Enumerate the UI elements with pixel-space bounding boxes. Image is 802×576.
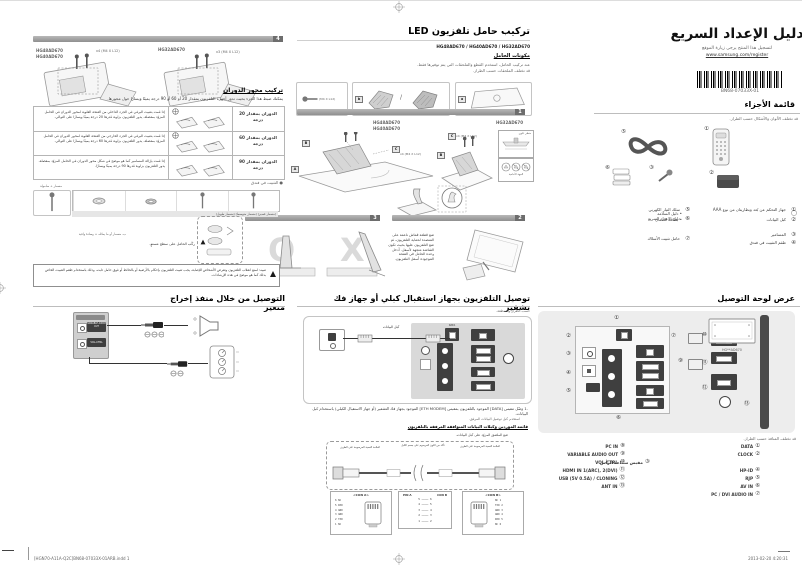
port-label: CLOCK xyxy=(738,452,753,457)
table-hline xyxy=(34,155,284,156)
panel-diagram xyxy=(538,311,795,433)
headphone-jack xyxy=(421,346,430,355)
manual-books-icon xyxy=(611,167,633,187)
warning-triangle-icon xyxy=(270,271,276,277)
wrong-placement-sketch xyxy=(325,230,387,284)
data-cable-label: كبل البيانات xyxy=(366,325,416,329)
variable-audio-label: VARIABLE AUDIO OUT xyxy=(87,322,106,332)
flat-surface-note-2: ب- مسمار أو ما يماثله + وسادة واقية xyxy=(70,232,126,236)
swivel-screws-left: x4 (M4 X L12) xyxy=(96,49,142,53)
port-cluster xyxy=(575,326,670,414)
port-num: ⑬ xyxy=(619,484,625,490)
remote-control-icon xyxy=(712,128,730,166)
screw-long-icon xyxy=(48,192,56,213)
screwbox xyxy=(33,190,71,216)
table-hline xyxy=(34,131,284,132)
rj-connector-icon xyxy=(425,334,441,343)
step-number: 3 xyxy=(370,215,380,221)
part-label: طقم التثبيت في فندق xyxy=(750,240,786,245)
rotation-label: الدوران بمقدار 90 درجة xyxy=(234,159,282,170)
place-tv-text: ضع قطعة قماش ناعمة على المنضدة لحماية ال… xyxy=(388,233,434,262)
stand-note-1: عند تركيب الحامل، استخدم القطع والملحقات… xyxy=(320,62,530,67)
callout-c: C xyxy=(448,133,456,140)
inset-top-view: منظر علوي xyxy=(498,130,534,158)
screw-position-icon xyxy=(172,108,179,115)
panel-heading: عرض لوحة التوصيل xyxy=(660,294,795,303)
swivel-diagram-right xyxy=(158,52,273,110)
table-vline xyxy=(168,107,169,179)
port-label: VOL-CTRL xyxy=(595,460,618,465)
parts-note: قد تختلف الألوان والأشكال حسب الطراز. xyxy=(640,116,798,121)
magnifier-detail xyxy=(437,185,467,213)
port-num: ② xyxy=(755,452,760,458)
tv-thumbnail xyxy=(708,318,756,346)
clock-port xyxy=(471,329,495,341)
data-cable-drawing xyxy=(331,460,509,484)
crop-dash-bottom-left xyxy=(2,550,14,551)
headphone-jack xyxy=(582,347,596,359)
legend-row: PC / DVI AUDIO IN⑦ xyxy=(600,492,760,498)
panel-top-strip xyxy=(76,315,105,320)
con-b-box: <CON B> NC 1 TXD 2 GND 3 GND 4 RXD 5 NC … xyxy=(462,491,524,535)
data-cable-pouch-icon xyxy=(716,172,740,190)
audio-cable-line xyxy=(107,325,141,326)
port-label: AV IN xyxy=(740,484,753,489)
port-label: HP-ID xyxy=(740,468,753,473)
caution-text: تنبيه: لمنع انقلاب التلفزيون وتعرض الأشخ… xyxy=(38,268,266,278)
registration-mark-bottom xyxy=(393,553,405,565)
inset-front-check: الجهة الأمامية xyxy=(498,158,534,182)
step-text: وصّل مقبس [DATA] الموجود بالتلفزيون بمقب… xyxy=(312,406,528,416)
port-num: ① xyxy=(755,444,760,450)
phone-plug-icon xyxy=(141,320,165,330)
stand-guide-icon xyxy=(365,87,399,111)
vol-ctrl-label: VOL-CTRL xyxy=(87,338,106,347)
screw-cell xyxy=(228,191,280,211)
plug-pins-icon xyxy=(144,331,164,338)
sticker-note: ضع الملصق المزوّد على كبل البيانات. xyxy=(380,433,508,437)
port-num: ⑥ xyxy=(755,484,760,490)
connector-front-icon xyxy=(361,500,385,530)
pin-row: 1 NC xyxy=(335,523,343,528)
port-num: ④ xyxy=(755,468,760,474)
con-b-caption: <CON B> xyxy=(463,493,523,497)
varout-heading: التوصيل من خلال منفذ إخراج متغير xyxy=(150,294,285,312)
screw-spec: (M4 X L12) xyxy=(319,97,335,101)
panel-callout: ⑨ xyxy=(678,359,683,365)
stb-step1b: استخدم كبل توصيل البيانات المرفق. xyxy=(300,417,520,421)
part-num: ④ xyxy=(791,240,796,246)
screw-position-icon xyxy=(172,132,179,139)
usb-side-port xyxy=(711,374,737,390)
screw-cell xyxy=(73,191,125,211)
port-top xyxy=(616,329,632,341)
speaker-icon xyxy=(190,313,220,339)
inset-caption: الجهة الأمامية xyxy=(499,173,533,176)
inset-caption: منظر علوي xyxy=(499,131,533,135)
volctrl-cable-h xyxy=(89,363,167,364)
port-num: ⑪ xyxy=(619,468,625,474)
callout-b: B xyxy=(437,152,445,159)
stb-note: حسب الطراز والمنطقة. xyxy=(430,309,530,313)
stand-rule xyxy=(297,40,530,41)
tv-model-label: HG**AD670 xyxy=(700,348,764,352)
port-label: PC / DVI AUDIO IN xyxy=(711,492,753,497)
volctrl-cable-h2 xyxy=(188,363,208,364)
power-cord-icon xyxy=(627,136,669,158)
rotation-label: الدوران بمقدار 60 درجة xyxy=(234,135,282,146)
port-label: VARIABLE AUDIO OUT xyxy=(567,452,618,457)
plug-pins-icon xyxy=(170,370,184,377)
barcode-text: BN68-07033X-01 xyxy=(697,89,783,94)
data-port xyxy=(636,385,664,396)
swivel-screws-right: x3 (M4 X L12) xyxy=(216,50,262,54)
step-bar-4: 4 xyxy=(33,36,283,42)
step-number: 4 xyxy=(273,36,283,42)
parts-label-warranty: • بطاقة الضمان xyxy=(590,217,682,222)
step-bar-1: 1 xyxy=(297,109,525,115)
tv-side-profile xyxy=(760,315,769,429)
callout-a: A xyxy=(291,166,299,173)
slash-separator: / xyxy=(400,94,402,101)
pad-inset xyxy=(197,216,243,264)
pin-row: NC 6 xyxy=(495,523,503,528)
diagram-models-a1: HG48AD670 xyxy=(345,120,400,125)
panel-note: قد تختلف المنافذ حسب الطراز. xyxy=(640,436,796,441)
flat-note-text: ركّب الحامل على سطح مستوٍ. xyxy=(149,242,195,246)
hdmi-ports xyxy=(636,361,664,381)
part-num: ⑥ xyxy=(685,216,690,222)
cable-tag-left: العلامة النصية المرسومة على الطرف xyxy=(335,446,385,450)
rotation-desc: إذا قمت بتثبيت البرغي في الجزء الداخلي م… xyxy=(37,110,165,120)
file-info: [HGN70-A11A-Q2C]BN68-07033X-01ARB.indd 1 xyxy=(34,556,129,561)
pin-list: 6 NC 5 RXD 4 GND 3 GND 2 TXD 1 NC xyxy=(335,499,343,528)
registration-mark-top xyxy=(393,1,405,13)
rotation-desc: إذا قمت بإزالة المسامير كما هو موضح في ش… xyxy=(37,159,165,169)
stand-guide-icon xyxy=(409,87,443,111)
stand-side-view-icon xyxy=(501,136,531,152)
port-label: ANT IN xyxy=(601,484,617,489)
data-cable-detail-box: العلامة النصية المرسومة على الطرف تأكد م… xyxy=(326,441,514,490)
panel-callout: ⑥ xyxy=(616,416,621,422)
panel-callout: ② xyxy=(566,334,571,340)
diagram-model-b: HG32AD670 xyxy=(478,120,523,125)
diagram-models-a2: HG40AD670 xyxy=(345,126,400,131)
screw-long-icon xyxy=(250,192,257,210)
bracket-shape-1 xyxy=(688,333,703,344)
port-label: USB (5V 0.5A) / CLONING xyxy=(559,476,618,481)
clock-port xyxy=(636,345,664,358)
port-num: ③ xyxy=(645,460,650,466)
data-port xyxy=(445,328,459,341)
screw-long-icon xyxy=(199,192,206,210)
audio-cable-line-2 xyxy=(164,325,188,326)
crop-tick-bottom-left xyxy=(28,547,29,560)
part-callout-6: ⑥ xyxy=(605,166,610,172)
map-head-b: CON B xyxy=(437,493,447,497)
panel-callout: ⑦ xyxy=(671,334,676,340)
rotation-sketch xyxy=(171,111,229,129)
map-head-a: PIN A xyxy=(403,493,412,497)
hdmi-ports xyxy=(471,345,495,363)
pin-row: 5 RXD xyxy=(335,504,343,509)
page-title: دليل الإعداد السريع xyxy=(662,26,802,42)
port-label: DATA xyxy=(741,444,753,449)
assembled-stand-icon xyxy=(396,186,438,216)
panel-callout: ⑩ xyxy=(702,333,707,339)
swivel-intro: يمكنك ضبط هذا الجزء بحيث تدور أجهزة التل… xyxy=(36,96,283,101)
port-label: PC IN xyxy=(605,444,618,449)
panel-callout: ⑬ xyxy=(744,402,750,408)
stb-eth-jack xyxy=(319,329,345,351)
swivel-heading: تركيب محور الدوران xyxy=(150,87,283,94)
part-label: حامل تثبيت الأسلاك xyxy=(647,236,680,241)
ant-in-port xyxy=(719,396,731,408)
scanned-manual-page: دليل الإعداد السريع لتسجيل هذا المنتج ير… xyxy=(0,0,802,576)
step-number: 1 xyxy=(515,109,525,115)
stand-subheading: مكونات الحامل xyxy=(430,53,530,59)
screw-strip xyxy=(72,190,280,212)
parts-label-safety: • دليل السلامة xyxy=(590,211,682,216)
pc-in-port xyxy=(636,398,664,409)
port-num: ⑤ xyxy=(755,476,760,482)
pad-detail-icon xyxy=(203,221,237,259)
bracket-shape-2 xyxy=(688,359,703,370)
table-vline xyxy=(232,107,233,179)
panel-callout: ⑫ xyxy=(702,386,708,392)
av-in-block xyxy=(602,349,622,407)
screw-cell xyxy=(176,191,228,211)
tv-insert-diagram xyxy=(455,228,525,286)
varout-panel: VARIABLE AUDIO OUT VOL-CTRL xyxy=(73,312,109,359)
hdmi-side-port-2 xyxy=(711,352,737,364)
screw-cell xyxy=(125,191,177,211)
part-callout-5: ⑤ xyxy=(621,130,626,136)
callout-b: B xyxy=(302,140,310,147)
rotation-table: الدوران بمقدار 20 درجة إذا قمت بتثبيت ال… xyxy=(33,106,285,180)
port-num: ⑩ xyxy=(620,460,625,466)
vol-ctrl-jack xyxy=(77,339,87,349)
stb-rule xyxy=(297,306,530,307)
parts-rule xyxy=(594,113,800,114)
register-note: لتسجيل هذا المنتج يرجى زيارة الموقع xyxy=(662,46,802,51)
pc-in-port xyxy=(471,381,495,391)
print-datetime: 2013-02-20 4:20:31 xyxy=(680,556,788,561)
av-in-block xyxy=(437,343,453,391)
caution-box: تنبيه: لمنع انقلاب التلفزيون وتعرض الأشخ… xyxy=(33,264,280,287)
crop-dash-bottom-right xyxy=(778,551,790,552)
panel-callout: ④ xyxy=(566,371,571,377)
part-label: دليل السلامة xyxy=(657,211,678,216)
rjp-port xyxy=(586,383,600,392)
con-a-caption: <CON A> xyxy=(331,493,391,497)
panel-callout: ③ xyxy=(566,352,571,358)
pin-row: TXD 2 xyxy=(495,504,503,509)
rotation-sketch xyxy=(171,135,229,153)
pin-map-box: PIN ACON B 5 ──── 6 4 ──── 5 3 ──── 4 2 … xyxy=(398,491,452,529)
stand-note-2: قد تختلف الملحقات حسب الطراز. xyxy=(320,68,530,73)
varout-rule xyxy=(33,306,285,307)
port-num: ⑧ xyxy=(620,444,625,450)
screw-count-right: x4 (M4 X L12) xyxy=(456,134,496,138)
step-number: 2 xyxy=(515,215,525,221)
part-num: ⑦ xyxy=(685,236,690,242)
phone-plug-icon xyxy=(167,359,189,369)
screw-icon xyxy=(302,95,318,103)
map-row: 1 ──── 2 xyxy=(399,519,451,524)
part-callout-2: ② xyxy=(709,171,714,177)
connector-front-icon xyxy=(467,500,491,530)
flat-surface-note: ركّب الحامل على سطح مستوٍ. xyxy=(130,230,206,249)
callout-c: C xyxy=(392,146,400,153)
barcode xyxy=(697,71,783,88)
rotation-desc: إذا قمت بتثبيت البرغي في الجزء الخارجي م… xyxy=(37,134,165,144)
part-label: بطاقة الضمان xyxy=(655,217,678,222)
part-callout-3: ③ xyxy=(649,166,654,172)
panel-callout: ⑪ xyxy=(702,361,708,367)
ant-in-port xyxy=(503,353,514,364)
vendors-heading: قائمة الموردين وكبلات البيانات المتوافقة… xyxy=(330,424,528,429)
panel-callout: ⑤ xyxy=(566,389,571,395)
step-bar-2: 2 xyxy=(392,215,525,221)
hpid-jack xyxy=(420,359,431,370)
registration-mark-left xyxy=(0,282,6,294)
washer-icon xyxy=(144,197,158,206)
component-tag: a xyxy=(458,96,466,103)
hpid-jack xyxy=(582,365,596,377)
orientation-icons xyxy=(501,161,531,173)
rotation-sketch xyxy=(171,159,229,177)
register-url: www.samsung.com/register xyxy=(662,53,802,58)
panel-rule xyxy=(538,306,800,307)
volume-controller-icon xyxy=(208,345,240,379)
con-a-box: <CON A> 6 NC 5 RXD 4 GND 3 GND 2 TXD 1 N… xyxy=(330,491,392,535)
parts-label-cable-holder: ⑦ حامل تثبيت الأسلاك xyxy=(590,225,690,244)
port-label: RJP xyxy=(745,476,753,481)
rj-connector-icon xyxy=(357,334,373,343)
pin-map-rows: 5 ──── 6 4 ──── 5 3 ──── 4 2 ──── 3 1 ──… xyxy=(399,497,451,524)
port-label: HDMI IN 1(ARC), 2(DVI) xyxy=(562,468,617,473)
washer-icon xyxy=(91,196,107,206)
panel-callout: ① xyxy=(614,316,619,322)
pin-list: NC 1 TXD 2 GND 3 GND 4 RXD 5 NC 6 xyxy=(495,499,503,528)
part-callout-1: ① xyxy=(704,127,709,133)
cable-tag-mid: تأكد من اللون المرسوم على جسم الكبل xyxy=(397,444,449,448)
rotation-label: الدوران بمقدار 20 درجة xyxy=(234,111,282,122)
hotel-fixing-note: ● التثبيت في فندق xyxy=(223,180,283,185)
component-tag: b xyxy=(355,96,363,103)
variable-audio-jack xyxy=(77,323,87,333)
port-num: ⑫ xyxy=(619,476,625,482)
port-num: ⑦ xyxy=(755,492,760,498)
screw-icon xyxy=(656,168,674,184)
usb-port xyxy=(471,367,495,377)
stand-models: HG48AD670 / HG40AD670 / HG32AD670 xyxy=(330,44,530,49)
screwbox-caption: مسمار + صامولة xyxy=(30,184,72,188)
screwrow-caption: (مسمار قصير) (مسمار متوسط) (مسمار طويل) xyxy=(72,211,278,217)
swivel-diagram-left xyxy=(38,52,153,110)
port-num: ⑨ xyxy=(620,452,625,458)
data-port-label: DATA xyxy=(445,324,459,327)
stb-step1: 1. وصّل مقبس [DATA] الموجود بالتلفزيون ب… xyxy=(300,406,528,416)
cable-tag-right: العلامة النصية المرسومة على الطرف xyxy=(453,445,507,449)
parts-heading: قائمة الأجزاء xyxy=(640,100,795,109)
stand-heading: تركيب حامل تلفزيون LED xyxy=(330,26,530,37)
stb-diagram-box: DATA كبل البيانات xyxy=(303,316,532,404)
